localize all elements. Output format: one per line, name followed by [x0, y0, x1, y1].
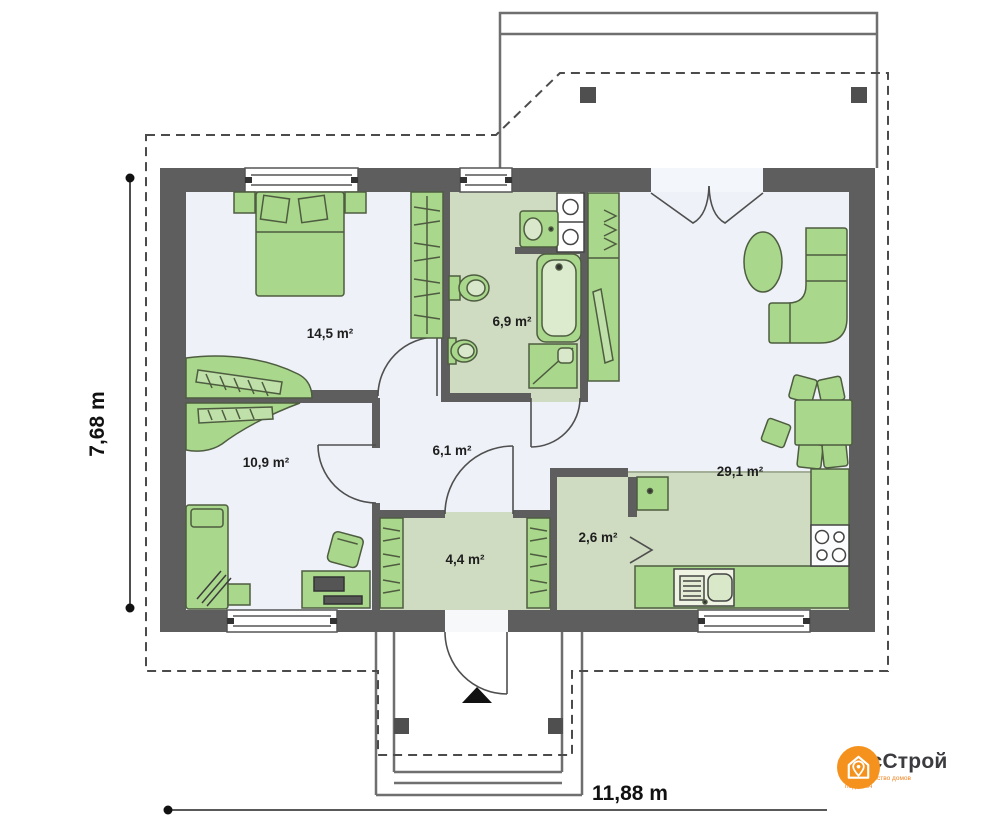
terrace-post-right: [851, 87, 867, 103]
terrace-post-left: [580, 87, 596, 103]
dining-table-icon: [795, 400, 852, 445]
second-bedroom-area-label: 10,9 m²: [243, 455, 290, 470]
nightstand-icon: [234, 192, 255, 213]
window-bathroom: [460, 168, 512, 192]
porch-post-right: [548, 718, 563, 734]
dimension-width: 11,88 m: [164, 782, 828, 815]
entry-wardrobe-left-icon: [380, 518, 403, 608]
entry-wardrobe-right-icon: [527, 518, 550, 608]
window-kitchen: [698, 610, 810, 632]
porch-post-left: [394, 718, 409, 734]
coffee-table-icon: [744, 232, 782, 292]
window-second-bedroom: [227, 610, 337, 632]
bedroom-area-label: 14,5 m²: [307, 326, 354, 341]
hall-area-label: 6,1 m²: [432, 443, 472, 458]
nightstand-icon: [345, 192, 366, 213]
boiler-icon: [637, 477, 668, 510]
entrance-arrow-icon: [462, 687, 492, 703]
terrace-outline: [500, 13, 877, 168]
dimension-height: 7,68 m: [86, 174, 135, 613]
bathroom-sink-icon: [520, 211, 558, 247]
stove-icon: [811, 525, 849, 566]
washer-icon: [557, 193, 584, 252]
wardrobe-icon: [411, 192, 443, 338]
kitchen-sink-icon: [674, 569, 734, 606]
double-bed-icon: [256, 192, 344, 296]
floor-plan-page: 14,5 m² 6,9 m² 10,9 m² 6,1 m² 4,4 m² 2,6…: [0, 0, 1000, 822]
height-dimension-label: 7,68 m: [86, 391, 109, 456]
side-table-icon: [228, 584, 250, 605]
house-pin-icon: [836, 745, 881, 790]
shower-icon: [529, 344, 577, 388]
bathroom-area-label: 6,9 m²: [492, 314, 532, 329]
front-door-opening: [445, 610, 508, 632]
single-bed-icon: [186, 505, 228, 609]
bathtub-icon: [537, 254, 581, 342]
closet-icon: [588, 193, 619, 381]
small-sink-icon: [448, 338, 477, 364]
entry-area-label: 4,4 m²: [445, 552, 485, 567]
pantry-area-label: 2,6 m²: [578, 530, 618, 545]
kitchen-counter-icon: [635, 566, 849, 608]
porch-outline: [376, 632, 582, 795]
window-bedroom: [245, 168, 358, 192]
toilet-icon: [449, 275, 489, 301]
desk-icon: [302, 571, 370, 608]
floor-plan-svg: 14,5 m² 6,9 m² 10,9 m² 6,1 m² 4,4 m² 2,6…: [0, 0, 1000, 822]
terrace-door-opening: [651, 168, 763, 192]
door-front: [445, 632, 507, 694]
width-dimension-label: 11,88 m: [592, 782, 668, 805]
russtroy-logo: РусСтрой Строительство домов под ключ: [836, 745, 947, 792]
living-kitchen-area-label: 29,1 m²: [717, 464, 764, 479]
